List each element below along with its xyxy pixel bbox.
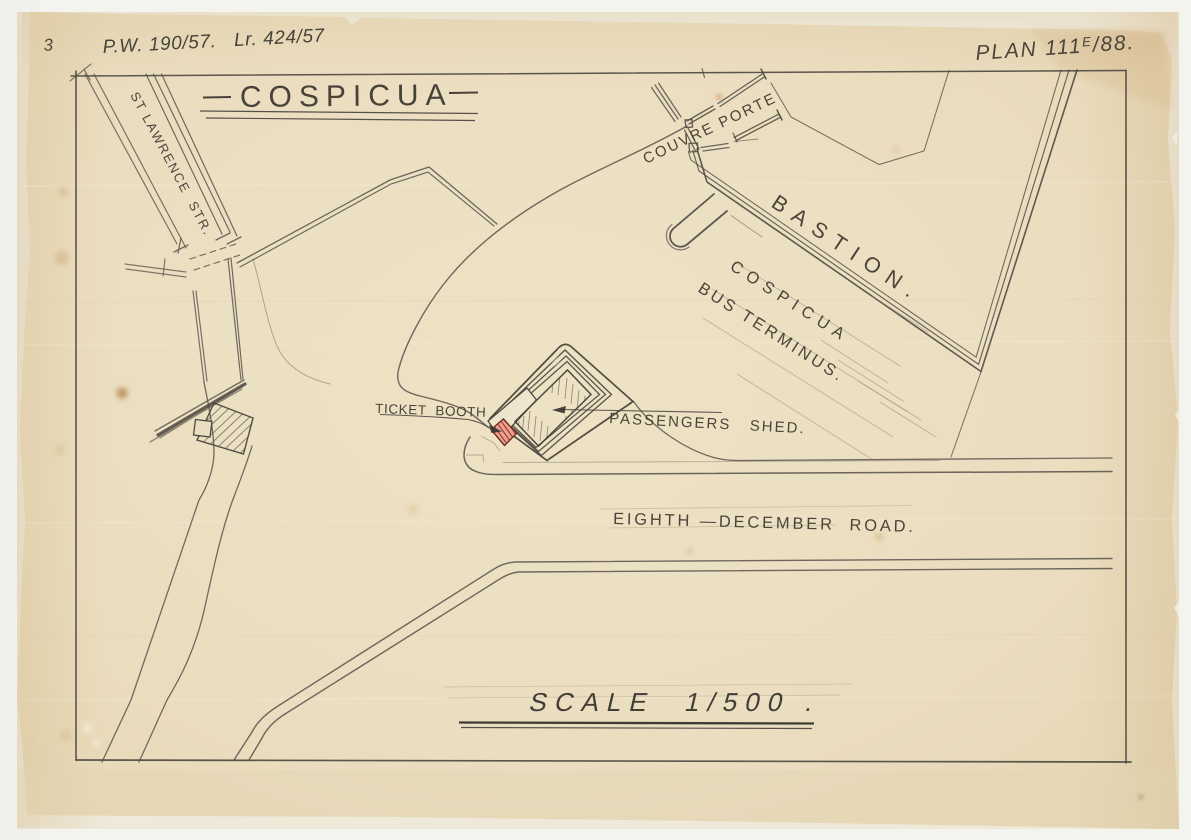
svg-text:COSPICUA: COSPICUA (240, 79, 453, 114)
svg-text:SCALE 1/500 .: SCALE 1/500 . (527, 687, 825, 717)
